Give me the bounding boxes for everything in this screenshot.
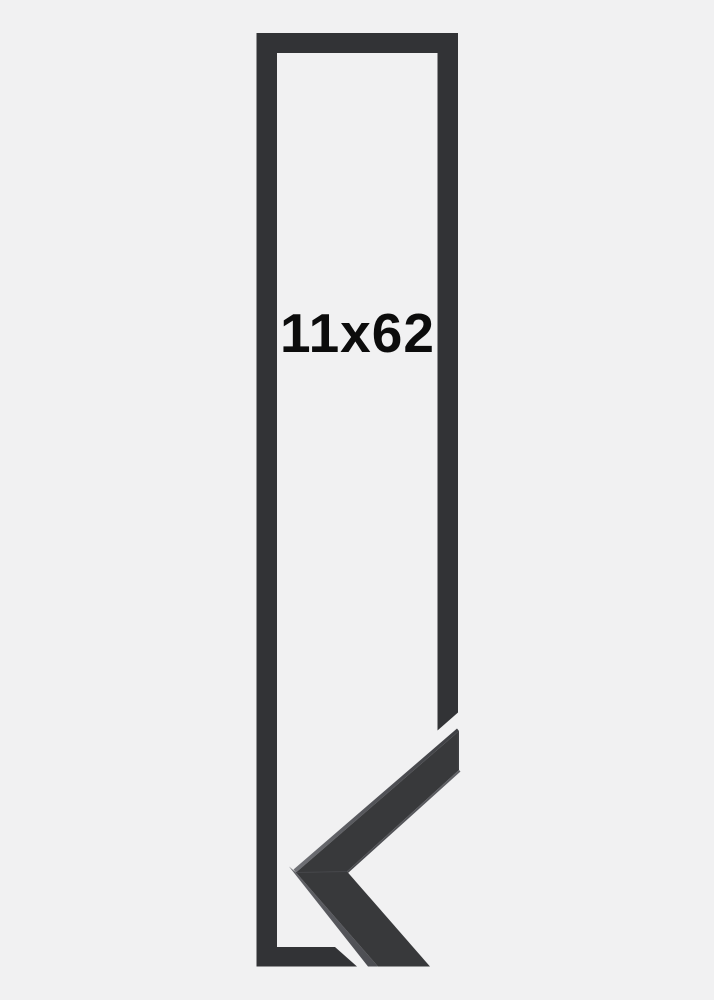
frame-outline-top-bar: [257, 33, 459, 53]
moulding-top-edge-highlight: [294, 729, 460, 873]
frame-product-image: 11x62: [0, 0, 714, 1000]
frame-preview-graphic: [0, 0, 714, 1000]
frame-outline-right-bar: [438, 33, 459, 731]
moulding-corner-sample: [289, 729, 461, 967]
frame-size-label: 11x62: [256, 306, 459, 361]
frame-outline-bottom-bar: [257, 947, 358, 967]
frame-outline-left-bar: [257, 33, 278, 967]
